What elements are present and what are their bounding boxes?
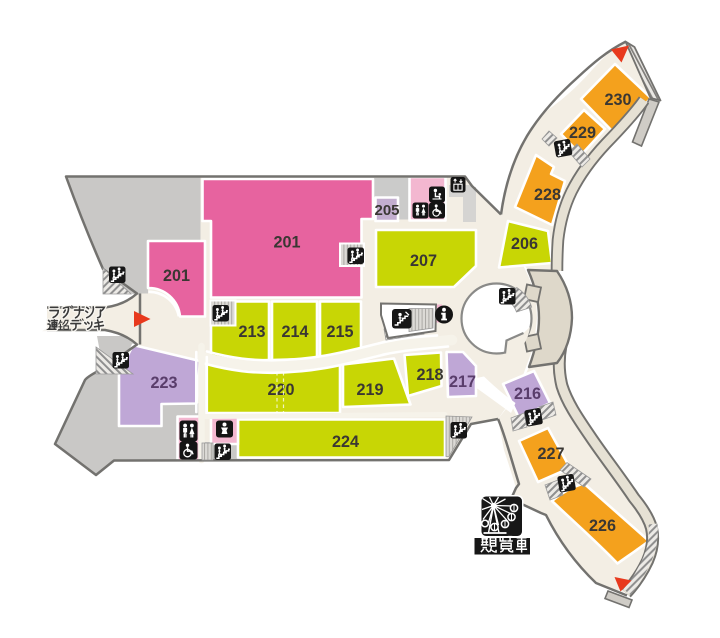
svg-text:215: 215 bbox=[326, 323, 353, 341]
svg-text:216: 216 bbox=[514, 385, 541, 403]
svg-text:224: 224 bbox=[332, 433, 359, 451]
svg-text:213: 213 bbox=[238, 323, 265, 341]
svg-text:223: 223 bbox=[150, 374, 177, 392]
svg-text:201: 201 bbox=[273, 234, 300, 252]
svg-text:226: 226 bbox=[589, 517, 616, 535]
svg-text:207: 207 bbox=[410, 252, 437, 270]
svg-text:229: 229 bbox=[569, 124, 596, 142]
svg-text:227: 227 bbox=[537, 445, 564, 463]
svg-text:230: 230 bbox=[604, 91, 631, 109]
svg-text:214: 214 bbox=[281, 323, 308, 341]
svg-text:219: 219 bbox=[356, 381, 383, 399]
svg-text:206: 206 bbox=[511, 235, 538, 253]
svg-text:228: 228 bbox=[534, 186, 561, 204]
svg-text:220: 220 bbox=[267, 381, 294, 399]
svg-text:217: 217 bbox=[449, 373, 476, 391]
svg-text:218: 218 bbox=[416, 366, 443, 384]
svg-text:201: 201 bbox=[163, 267, 190, 285]
svg-text:205: 205 bbox=[374, 202, 399, 219]
